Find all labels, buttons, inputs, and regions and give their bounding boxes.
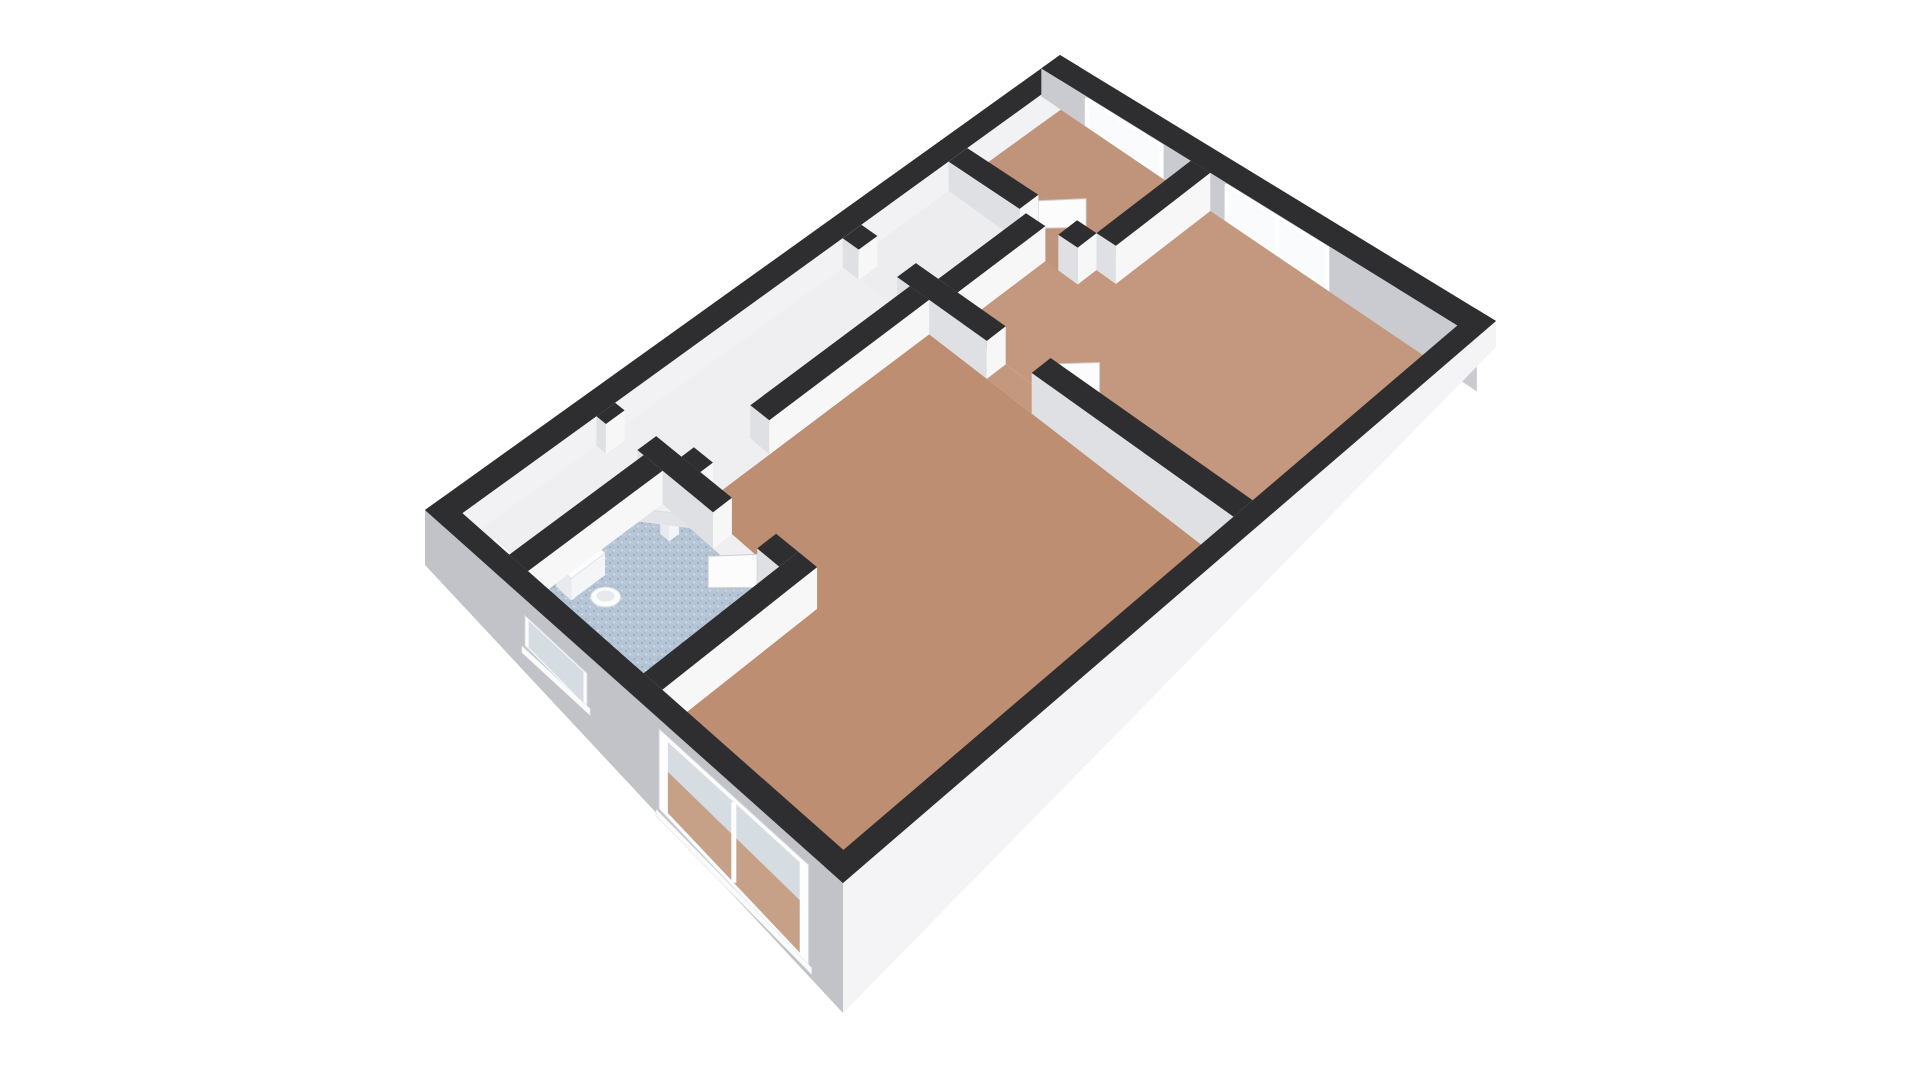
- bathroom-door: [708, 554, 757, 587]
- floorplan-canvas: [0, 0, 1920, 1080]
- floorplan-image: [0, 0, 1920, 1080]
- toilet-bowl-rim: [597, 591, 615, 602]
